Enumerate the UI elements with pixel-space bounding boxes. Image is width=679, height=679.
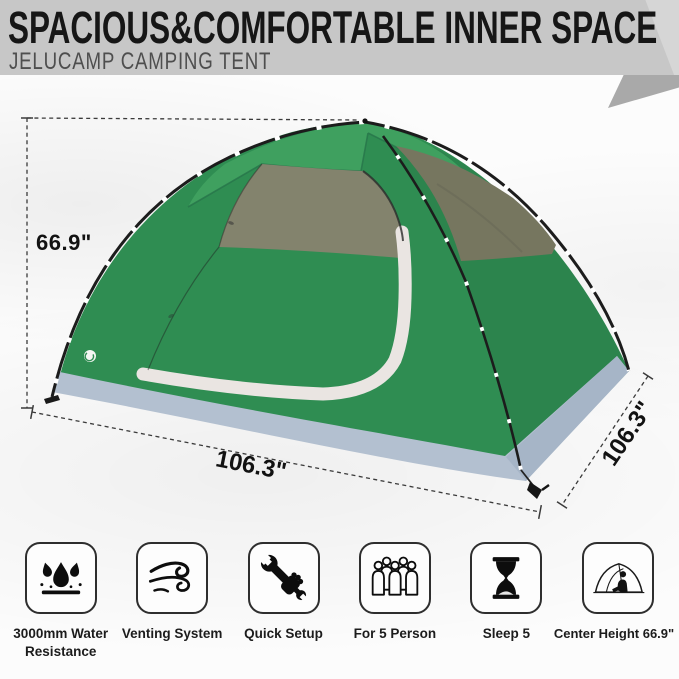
feature-center-height: Center Height 66.9" (562, 542, 674, 661)
feature-label: Center Height 66.9" (554, 625, 674, 643)
feature-sleep-capacity: Sleep 5 (451, 542, 562, 661)
feature-box (136, 542, 208, 614)
feature-box (470, 542, 542, 614)
page-subtitle: JELUCAMP CAMPING TENT (9, 48, 271, 76)
people-icon (365, 548, 425, 608)
wind-icon (142, 548, 202, 608)
product-infographic: SPACIOUS&COMFORTABLE INNER SPACE JELUCAM… (0, 0, 679, 679)
feature-label: For 5 Person (354, 625, 437, 643)
feature-quick-setup: Quick Setup (228, 542, 339, 661)
tent-height-icon (588, 548, 648, 608)
depth-tick-top (643, 373, 653, 380)
tent-stake (527, 482, 542, 499)
feature-box (248, 542, 320, 614)
feature-venting-system: Venting System (116, 542, 227, 661)
page-title: SPACIOUS&COMFORTABLE INNER SPACE (8, 2, 657, 54)
header-band: SPACIOUS&COMFORTABLE INNER SPACE JELUCAM… (0, 0, 679, 75)
height-dimension-label: 66.9" (36, 230, 92, 256)
feature-label: 3000mm Water Resistance (11, 625, 111, 661)
height-dimension-top (27, 118, 360, 120)
feature-box (359, 542, 431, 614)
feature-label: Venting System (122, 625, 223, 643)
feature-box (25, 542, 97, 614)
feature-label: Sleep 5 (483, 625, 530, 643)
wrench-icon (254, 548, 314, 608)
tent-stake-hook (542, 485, 549, 490)
depth-tick-bottom (557, 502, 567, 509)
hourglass-icon (476, 548, 536, 608)
width-tick-right (539, 505, 542, 519)
feature-row: 3000mm Water Resistance Venting System (0, 542, 679, 661)
feature-capacity: For 5 Person (339, 542, 450, 661)
pole-hub (362, 118, 367, 123)
feature-water-resistance: 3000mm Water Resistance (5, 542, 116, 661)
feature-label: Quick Setup (244, 625, 323, 643)
water-drops-icon (31, 548, 91, 608)
feature-box (582, 542, 654, 614)
